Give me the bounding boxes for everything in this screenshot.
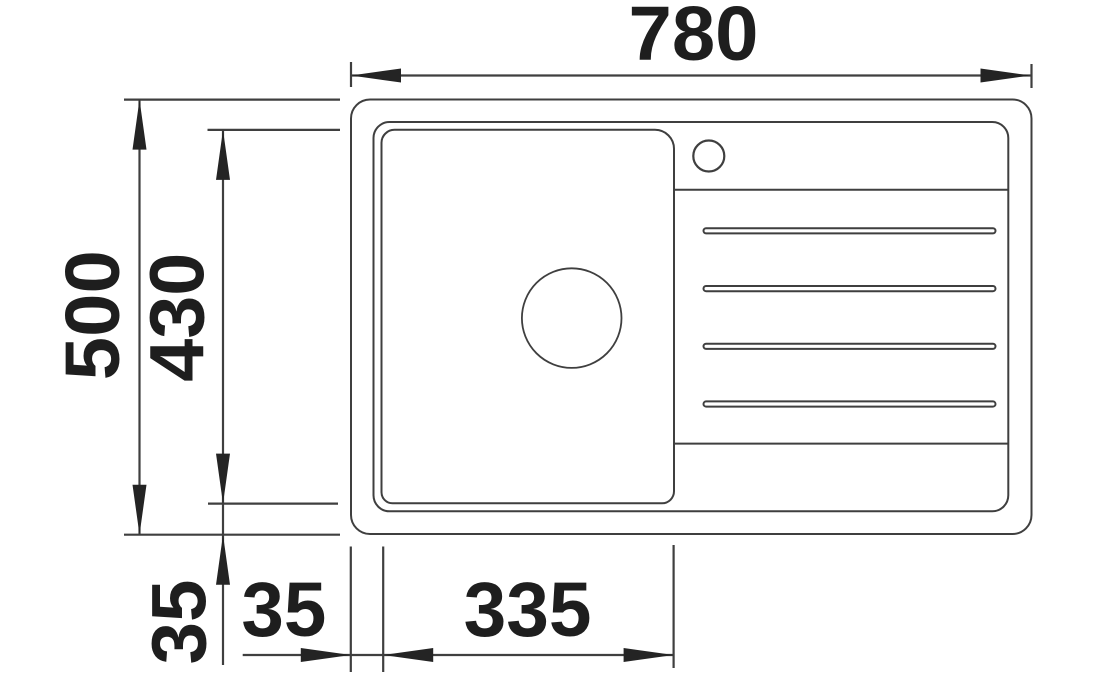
svg-text:335: 335 (464, 567, 592, 653)
svg-text:35: 35 (241, 567, 326, 653)
svg-text:500: 500 (50, 250, 136, 380)
svg-text:35: 35 (137, 580, 223, 665)
svg-text:780: 780 (629, 0, 759, 77)
svg-text:430: 430 (135, 253, 221, 382)
